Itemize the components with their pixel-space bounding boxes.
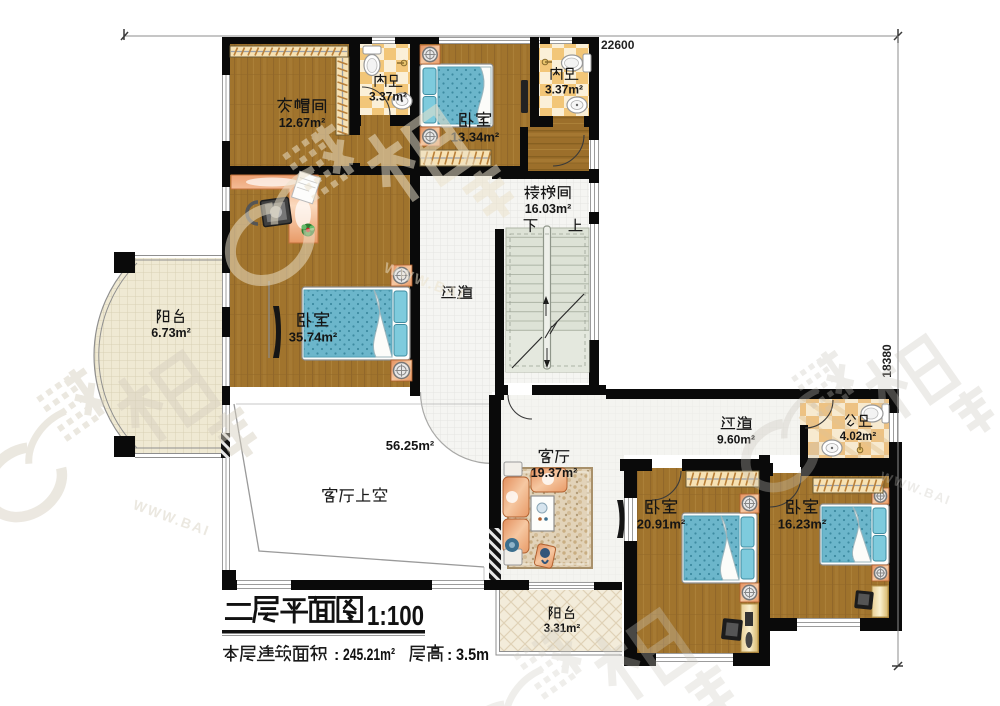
svg-text::: : — [334, 647, 339, 664]
svg-text:20.91m²: 20.91m² — [637, 517, 686, 532]
svg-text:16.03m²: 16.03m² — [525, 202, 572, 216]
svg-text::: : — [447, 647, 452, 664]
svg-text:3.37m²: 3.37m² — [545, 83, 583, 97]
svg-text:56.25m²: 56.25m² — [386, 438, 435, 453]
svg-text:3.5m: 3.5m — [456, 646, 489, 664]
svg-text:35.74m²: 35.74m² — [289, 330, 338, 345]
svg-text:245.21m²: 245.21m² — [343, 646, 395, 664]
svg-text:4.02m²: 4.02m² — [840, 431, 877, 443]
svg-text:22600: 22600 — [601, 38, 635, 52]
svg-text:1:100: 1:100 — [367, 600, 424, 631]
svg-text:19.37m²: 19.37m² — [531, 466, 578, 480]
svg-text:6.73m²: 6.73m² — [151, 326, 191, 340]
svg-text:3.37m²: 3.37m² — [369, 90, 407, 104]
svg-text:16.23m²: 16.23m² — [778, 517, 827, 532]
